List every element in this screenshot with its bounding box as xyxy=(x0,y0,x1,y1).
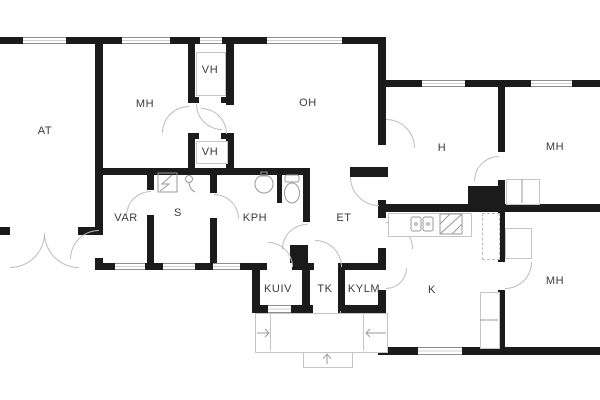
floor-plan: AT MH VH VH OH VAR S KPH ET H MH KUIV TK… xyxy=(0,0,600,400)
wardrobe xyxy=(505,228,532,259)
room-label-tk: TK xyxy=(317,283,332,295)
wall xyxy=(340,263,386,270)
wall xyxy=(210,218,217,263)
room-label-k: K xyxy=(428,284,436,296)
kitchen-counter xyxy=(388,213,472,237)
wall xyxy=(226,168,310,175)
room-label-et: ET xyxy=(336,212,351,224)
shower-icon xyxy=(186,176,196,193)
room-label-mh-nw: MH xyxy=(136,98,154,110)
wall xyxy=(386,80,422,87)
door-arc xyxy=(162,106,189,133)
wall xyxy=(572,80,600,87)
window xyxy=(163,263,195,270)
wall xyxy=(277,175,282,203)
room-label-kph: KPH xyxy=(243,212,267,224)
window xyxy=(200,37,222,44)
wall xyxy=(0,37,23,44)
kitchen-closet xyxy=(480,292,500,349)
chimney-block xyxy=(468,186,500,208)
wall xyxy=(252,305,268,313)
door-arc xyxy=(214,194,239,219)
wall xyxy=(340,305,386,313)
porch-outline xyxy=(255,313,388,353)
wall xyxy=(95,168,230,175)
door-arc xyxy=(282,224,307,249)
wall xyxy=(66,37,122,44)
wall xyxy=(195,263,213,270)
wall xyxy=(226,37,234,105)
room-label-h: H xyxy=(438,142,447,154)
wardrobe xyxy=(506,179,540,205)
door-arc xyxy=(474,156,499,181)
room-label-var: VAR xyxy=(114,212,138,224)
wall xyxy=(95,37,103,230)
wall xyxy=(95,263,115,270)
room-label-kylm: KYLM xyxy=(348,283,380,295)
porch-step xyxy=(303,352,353,368)
wall xyxy=(147,175,154,190)
window xyxy=(115,263,145,270)
room-label-oh: OH xyxy=(299,97,317,109)
door-arc xyxy=(386,119,415,148)
room-label-mh-se: MH xyxy=(546,275,564,287)
toilet-icon xyxy=(285,175,300,203)
door-arc xyxy=(386,268,407,289)
window xyxy=(418,347,462,355)
porch-divider xyxy=(270,313,271,351)
room-label-mh-ne: MH xyxy=(546,141,564,153)
wall xyxy=(221,97,234,103)
wall xyxy=(145,263,163,270)
kitchen-cabinet xyxy=(482,213,500,260)
window xyxy=(531,80,572,87)
room-label-at: AT xyxy=(38,125,52,137)
wall xyxy=(147,215,154,263)
sauna-stove-icon xyxy=(158,173,177,192)
wall xyxy=(170,37,200,44)
wall xyxy=(350,167,388,177)
wall xyxy=(303,175,310,222)
room-label-s: S xyxy=(174,207,182,219)
window xyxy=(267,37,342,44)
porch-divider xyxy=(363,313,364,351)
wall xyxy=(291,305,313,313)
window xyxy=(422,80,465,87)
door-arc xyxy=(10,233,45,268)
door-arc xyxy=(315,240,342,267)
door-arc xyxy=(505,262,532,289)
door-arc xyxy=(350,177,379,206)
room-label-vh-top: VH xyxy=(202,64,218,76)
wall xyxy=(498,87,505,152)
window xyxy=(213,263,240,270)
room-label-kuiv: KUIV xyxy=(264,283,292,295)
wall xyxy=(188,44,195,103)
window xyxy=(268,305,291,313)
window xyxy=(23,37,66,44)
wall xyxy=(0,227,10,235)
wall xyxy=(465,80,531,87)
washbasin-icon xyxy=(255,172,273,193)
wall xyxy=(210,175,217,193)
wall xyxy=(378,200,386,218)
room-label-vh-bottom: VH xyxy=(202,146,218,158)
door-arc xyxy=(201,108,227,134)
window xyxy=(122,37,170,44)
wall xyxy=(378,37,386,145)
wall xyxy=(188,97,199,103)
wall xyxy=(188,139,195,168)
